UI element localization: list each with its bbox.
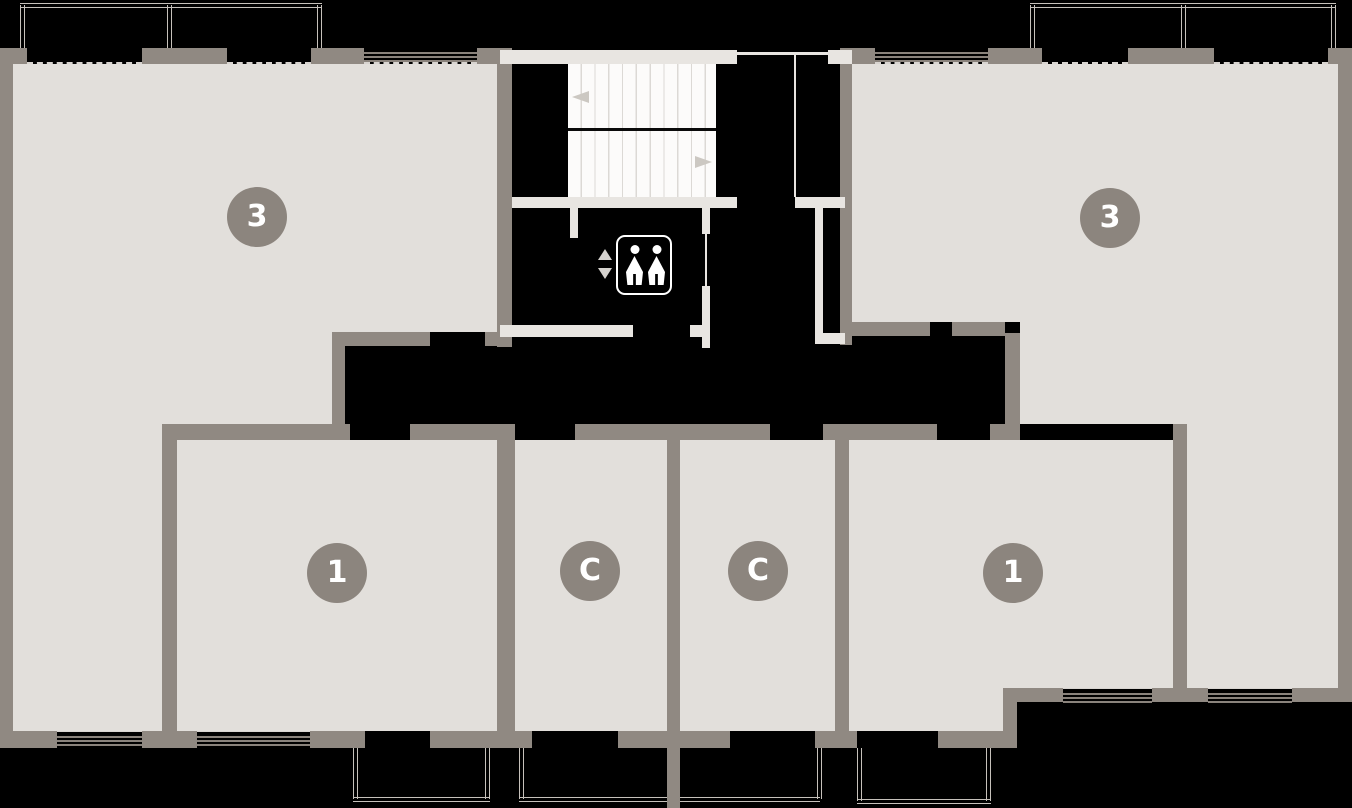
room-apartment-3-right-mid[interactable] <box>1020 322 1338 424</box>
window <box>875 48 988 64</box>
wall <box>332 332 430 346</box>
wall-divider <box>497 424 515 748</box>
wall-core-bottom <box>690 325 710 337</box>
unit-badge-apartment-1-left[interactable]: 1 <box>307 543 367 603</box>
balcony-rail <box>1030 5 1035 48</box>
room-apartment-1-right-ext[interactable] <box>849 688 1003 731</box>
balcony-rail <box>680 797 820 802</box>
wall <box>990 424 1020 440</box>
balcony-rail <box>986 748 991 801</box>
wall <box>988 48 1042 64</box>
wall <box>618 731 730 748</box>
wall <box>1152 688 1208 702</box>
wall-lift-stub <box>570 208 578 238</box>
wall <box>702 208 710 234</box>
balcony-door-opening <box>1214 48 1328 64</box>
person-icon <box>648 245 665 285</box>
room-apartment-3-left-mid[interactable] <box>13 332 332 424</box>
elevator-icon <box>616 235 672 295</box>
wall <box>1003 688 1063 702</box>
wall-divider <box>1173 424 1187 702</box>
balcony-rail <box>485 748 490 799</box>
window <box>57 731 142 749</box>
wall <box>815 731 857 748</box>
wall <box>1128 48 1214 64</box>
balcony-rail <box>317 5 322 48</box>
unit-badge-apartment-3-right[interactable]: 3 <box>1080 188 1140 248</box>
person-icon <box>626 245 643 285</box>
wall <box>852 322 930 336</box>
balcony-rail <box>857 748 862 801</box>
balcony-door-opening <box>227 48 311 64</box>
unit-badge-apartment-3-left[interactable]: 3 <box>227 187 287 247</box>
wall <box>142 731 197 748</box>
wall-thin-line <box>794 55 796 197</box>
wall <box>142 48 227 64</box>
wall-exterior-right <box>1338 48 1352 702</box>
balcony-rail <box>353 748 358 799</box>
stair-flight-separator <box>568 128 716 131</box>
balcony-rail <box>817 748 822 799</box>
balcony-rail <box>1181 5 1186 48</box>
wall-core-bottom <box>500 325 633 337</box>
wall-landing <box>512 197 737 208</box>
room-apartment-3-left-column[interactable] <box>13 424 162 731</box>
balcony-rail <box>353 797 490 802</box>
wall <box>310 731 365 748</box>
balcony-door-opening <box>27 48 142 64</box>
elevator-down-arrow-icon <box>598 268 612 279</box>
stair-arrow-down-icon <box>695 156 712 168</box>
window <box>1063 688 1152 703</box>
balcony-rail <box>519 797 667 802</box>
stair-arrow-up-icon <box>572 91 589 103</box>
floor-plan: 3 3 1 С С 1 <box>0 0 1352 808</box>
wall <box>702 286 710 348</box>
balcony-rail <box>1331 5 1336 48</box>
wall <box>0 731 57 748</box>
balcony-rail <box>519 748 524 799</box>
unit-badge-studio-left[interactable]: С <box>560 541 620 601</box>
wall-divider <box>835 424 849 748</box>
wall-divider <box>667 424 680 808</box>
door-leaf-line <box>705 234 707 286</box>
balcony-rail <box>20 5 25 48</box>
wall-divider <box>162 424 177 748</box>
balcony-door-opening <box>1042 48 1128 64</box>
unit-badge-apartment-1-right[interactable]: 1 <box>983 543 1043 603</box>
staircase <box>568 64 716 198</box>
wall <box>162 424 350 440</box>
window <box>1208 688 1292 703</box>
wall <box>311 48 364 64</box>
balcony-rail <box>857 799 991 804</box>
wall <box>952 322 1005 336</box>
wall-stub <box>828 50 852 64</box>
wall-shaft-left <box>815 197 823 344</box>
balcony-rail <box>167 5 172 48</box>
wall-beam-line <box>737 52 832 55</box>
wall-core-left <box>497 64 512 347</box>
room-apartment-3-right-column[interactable] <box>1187 424 1338 688</box>
window <box>197 731 310 749</box>
unit-badge-studio-right[interactable]: С <box>728 541 788 601</box>
wall-core-top <box>500 50 737 64</box>
window <box>364 48 477 64</box>
wall-exterior-left <box>0 48 13 748</box>
wall <box>1292 688 1352 702</box>
wall-shaft-bottom <box>815 333 845 344</box>
elevator-up-arrow-icon <box>598 249 612 260</box>
wall <box>430 731 532 748</box>
